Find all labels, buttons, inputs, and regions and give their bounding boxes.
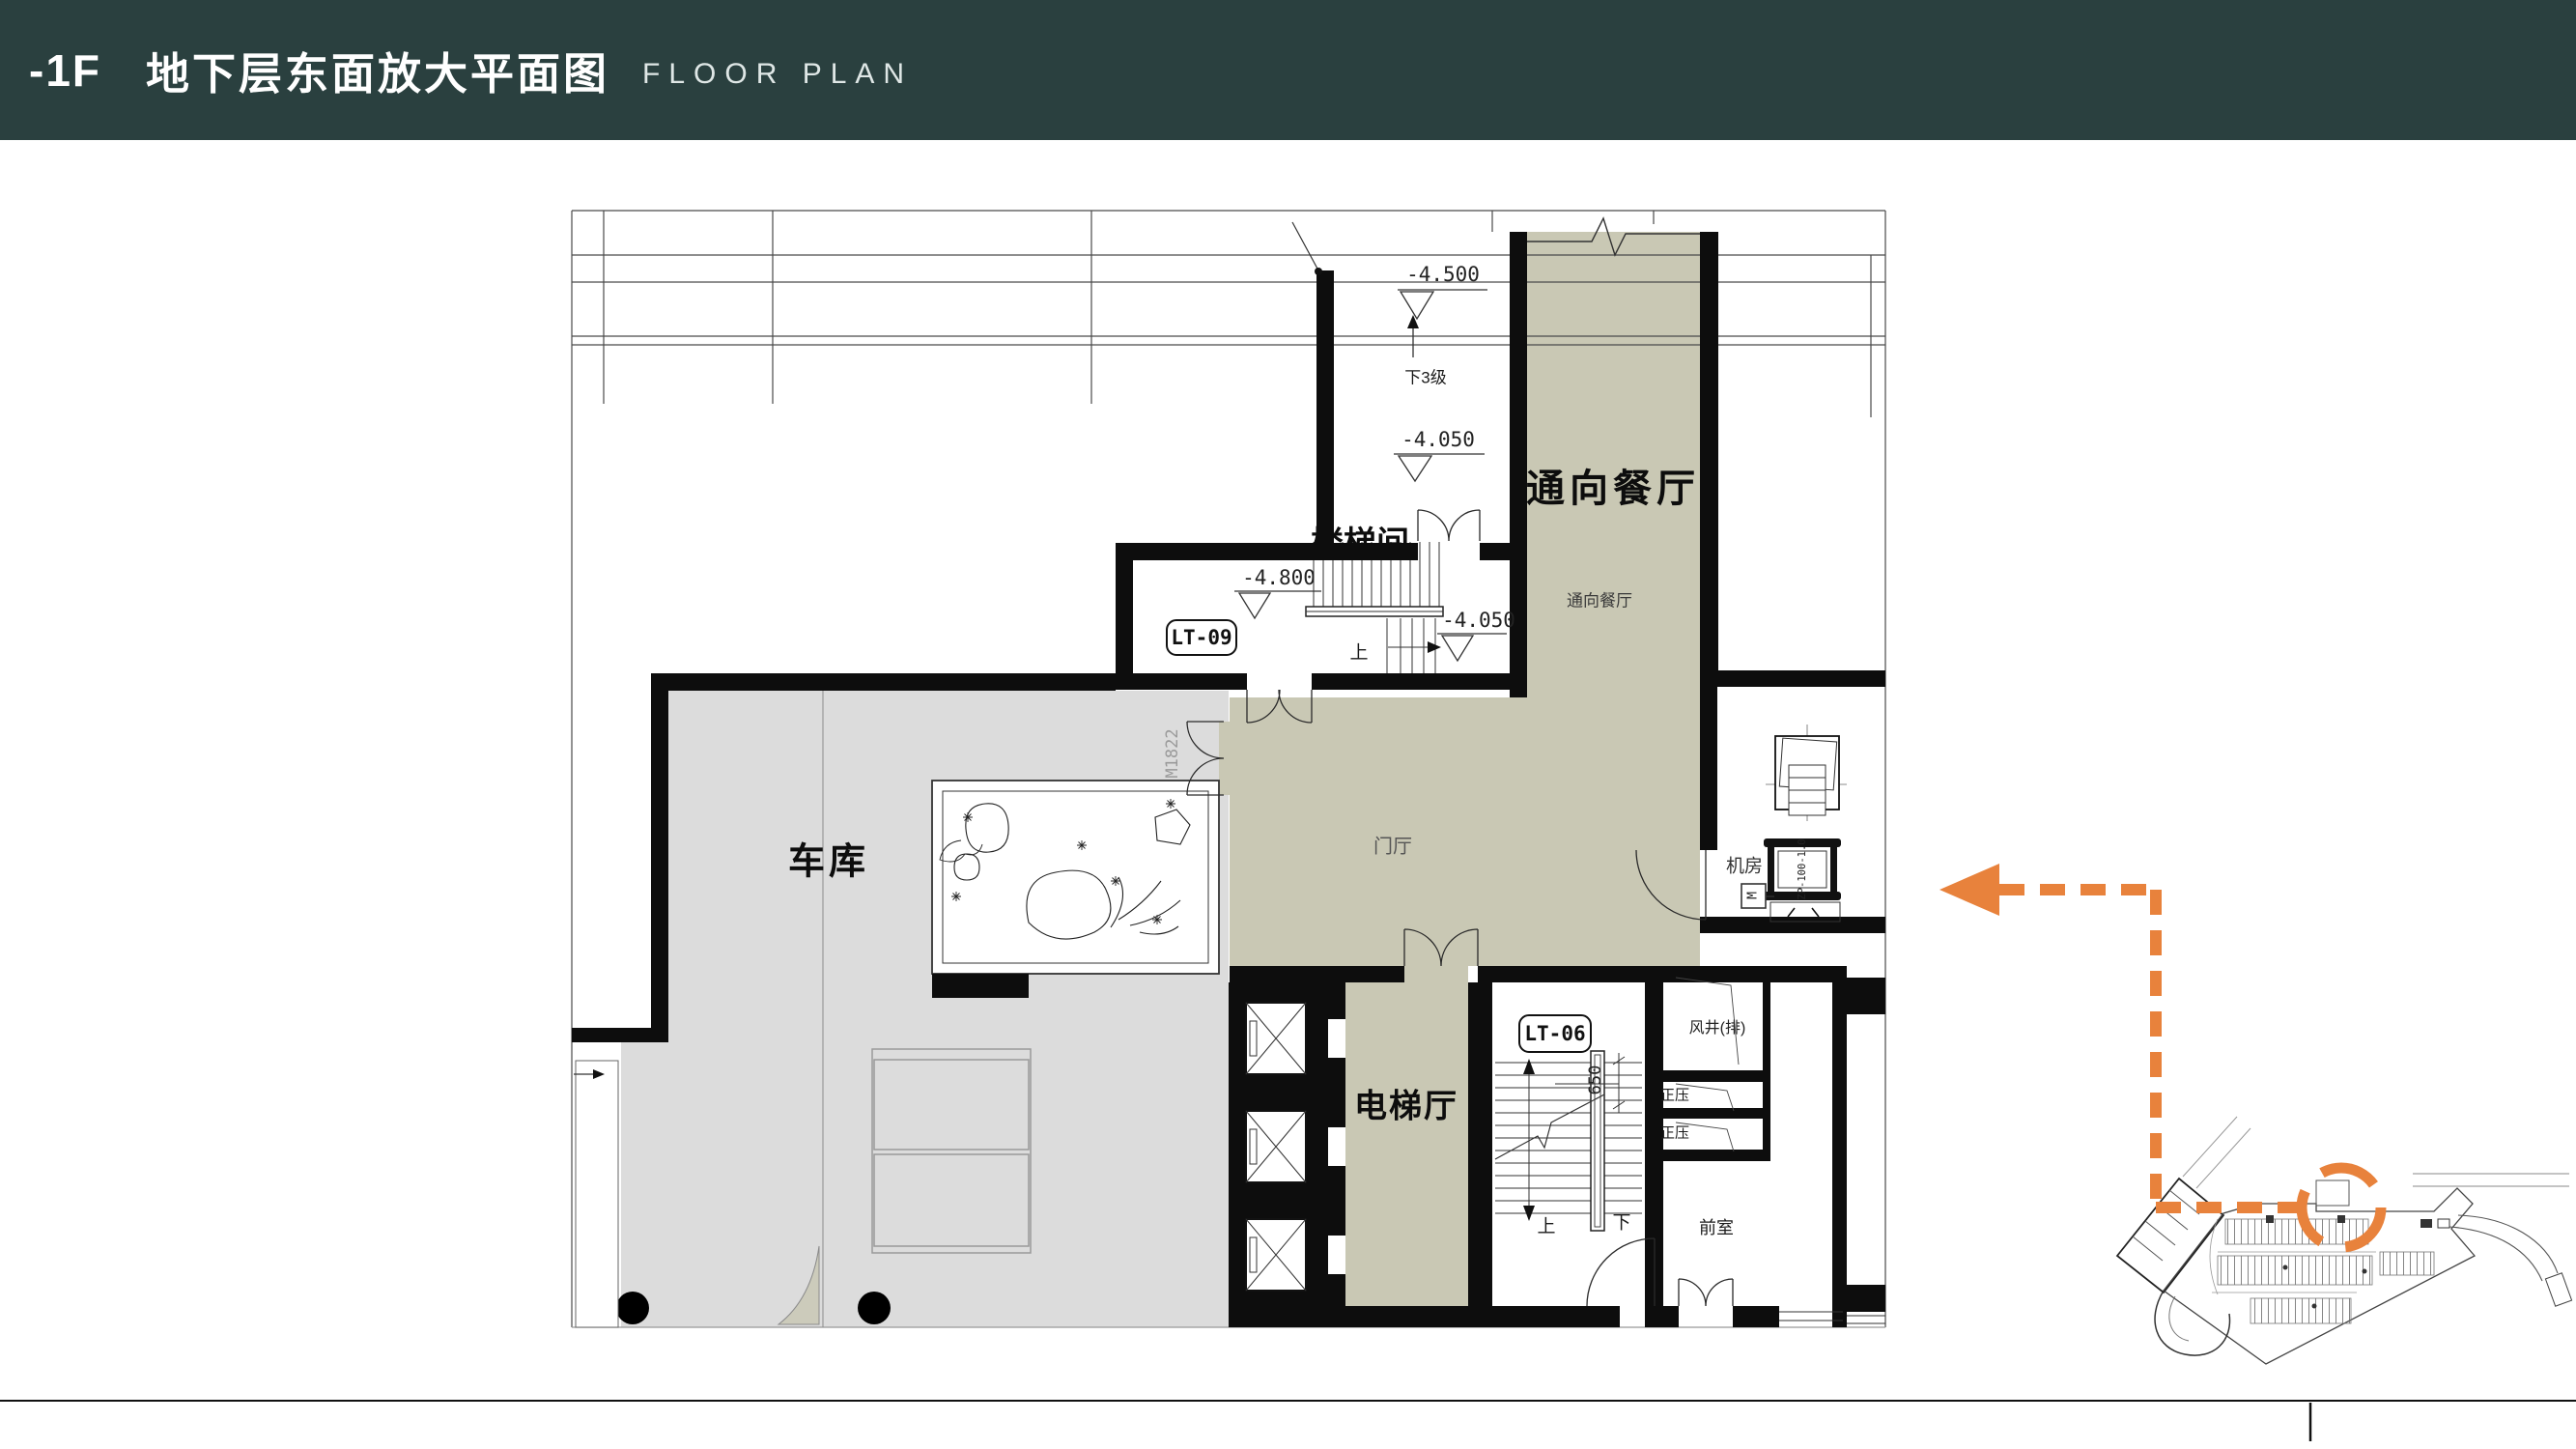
stair-lt06 [1495, 1051, 1642, 1231]
minimap-loop-road [2155, 1291, 2229, 1355]
corner-column [1847, 978, 1885, 1014]
floor-plan-drawing: 楼梯间 [0, 0, 2576, 1449]
minimap-road-curve [2449, 1215, 2558, 1281]
equipment-tag-motor: M [1746, 892, 1761, 899]
locator-annotation [1939, 864, 2381, 1247]
wall [572, 1028, 668, 1042]
planter-box [932, 781, 1219, 974]
wall [1116, 543, 1133, 690]
wall [651, 673, 668, 1036]
column-dot [858, 1292, 891, 1324]
note-down-lt06: 下 [1612, 1208, 1630, 1235]
stair-badge-lt09: LT-09 [1166, 619, 1237, 656]
wall [1312, 673, 1526, 690]
wall [1663, 1070, 1763, 1082]
wall [1480, 543, 1510, 560]
wall-stub [932, 974, 1029, 998]
wall [1763, 971, 1770, 1161]
room-label-machine-room: 机房 [1726, 852, 1763, 878]
up-arrowhead [1407, 315, 1419, 328]
wall [1733, 1306, 1779, 1327]
wall [1229, 1306, 1620, 1327]
door-tag-m1822: M1822 [1163, 728, 1182, 778]
elevator-shafts [1246, 1003, 1345, 1291]
elevation-4050-a: -4.050 [1401, 428, 1475, 451]
corner-column [1847, 1285, 1885, 1312]
room-label-pressure-2: 正压 [1660, 1122, 1689, 1143]
garage-floor-ext [621, 1042, 668, 1327]
elevator-hall-floor [1345, 982, 1468, 1306]
wall [1663, 1108, 1763, 1119]
single-door [1587, 1238, 1655, 1306]
wall [657, 673, 1116, 691]
wall [1116, 673, 1247, 690]
wall [1663, 1150, 1763, 1161]
wall [1832, 976, 1847, 1327]
foyer-floor [1230, 697, 1700, 966]
column-dot [616, 1292, 649, 1324]
room-sublabel-corridor: 通向餐厅 [1567, 587, 1632, 611]
room-label-elevator-hall: 电梯厅 [1354, 1080, 1458, 1127]
double-door [1418, 510, 1480, 541]
leader-line [1292, 222, 1318, 270]
stair-arrowhead [1428, 641, 1441, 653]
room-label-foyer: 门厅 [1373, 831, 1412, 859]
minimap-left-wing [2117, 1179, 2223, 1293]
locator-arrowhead [1939, 864, 1999, 916]
stair-arrow-up [1523, 1059, 1535, 1074]
wall [1316, 270, 1334, 543]
room-label-garage: 车库 [788, 832, 869, 885]
wall [1116, 543, 1418, 560]
wall [1700, 670, 1885, 687]
wall [1230, 966, 1404, 982]
wall [1655, 1306, 1679, 1327]
equipment-tag-fan: ZP-100-1.0 [1797, 838, 1808, 899]
room-label-air-shaft: 风井(排) [1689, 1014, 1746, 1037]
note-down-3-steps: 下3级 [1404, 364, 1446, 388]
elevation-4050-b: -4.050 [1442, 609, 1515, 632]
wall [1700, 687, 1717, 850]
room-label-corridor: 通向餐厅 [1526, 457, 1700, 513]
note-up-lt06: 上 [1537, 1212, 1555, 1238]
double-door-exit [1679, 1279, 1733, 1306]
overview-minimap [2117, 1117, 2572, 1364]
wall [1468, 982, 1492, 1327]
room-label-pressure-1: 正压 [1660, 1085, 1689, 1105]
door-threshold [1404, 966, 1468, 982]
elevation-4500: -4.500 [1406, 263, 1480, 286]
note-up-lt09: 上 [1349, 639, 1368, 665]
wall [1700, 917, 1885, 933]
wall [1700, 232, 1718, 687]
dim-650: 650 [1586, 1065, 1605, 1095]
room-label-front-room: 前室 [1699, 1214, 1734, 1239]
wall-bay [576, 1061, 618, 1327]
slide-canvas: { "header": { "floor_tag": "-1F", "title… [0, 0, 2576, 1449]
elevation-4800: -4.800 [1242, 566, 1316, 589]
stair-badge-lt06: LT-06 [1518, 1014, 1592, 1053]
leader-dot [1315, 268, 1322, 275]
